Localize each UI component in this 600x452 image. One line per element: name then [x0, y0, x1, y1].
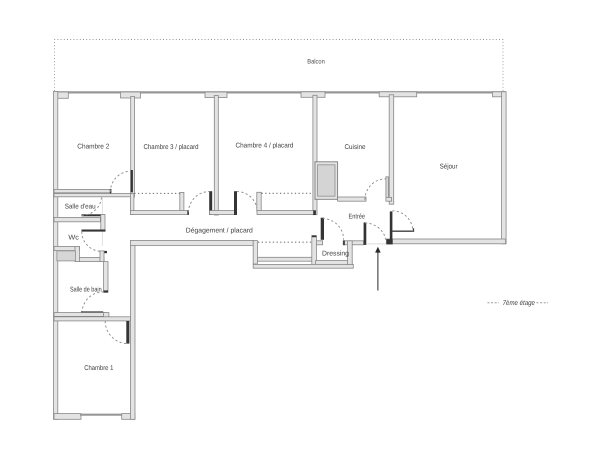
svg-text:Entrée: Entrée [349, 212, 366, 220]
svg-text:Séjour: Séjour [440, 163, 459, 171]
svg-text:Chambre 1: Chambre 1 [84, 365, 113, 372]
svg-text:7ème étage: 7ème étage [503, 299, 535, 307]
svg-text:Chambre 3 / placard: Chambre 3 / placard [144, 144, 199, 151]
svg-text:Wc: Wc [68, 234, 79, 241]
svg-text:Dressing: Dressing [322, 250, 349, 257]
svg-text:Cuisine: Cuisine [345, 144, 366, 151]
svg-text:Chambre 4 / placard: Chambre 4 / placard [236, 142, 294, 149]
svg-text:Balcon: Balcon [307, 59, 325, 66]
svg-text:Salle de bain: Salle de bain [70, 287, 102, 294]
svg-text:Salle d'eau: Salle d'eau [65, 203, 96, 210]
svg-text:Chambre 2: Chambre 2 [77, 143, 109, 150]
svg-text:Dégagement / placard: Dégagement / placard [186, 227, 253, 235]
